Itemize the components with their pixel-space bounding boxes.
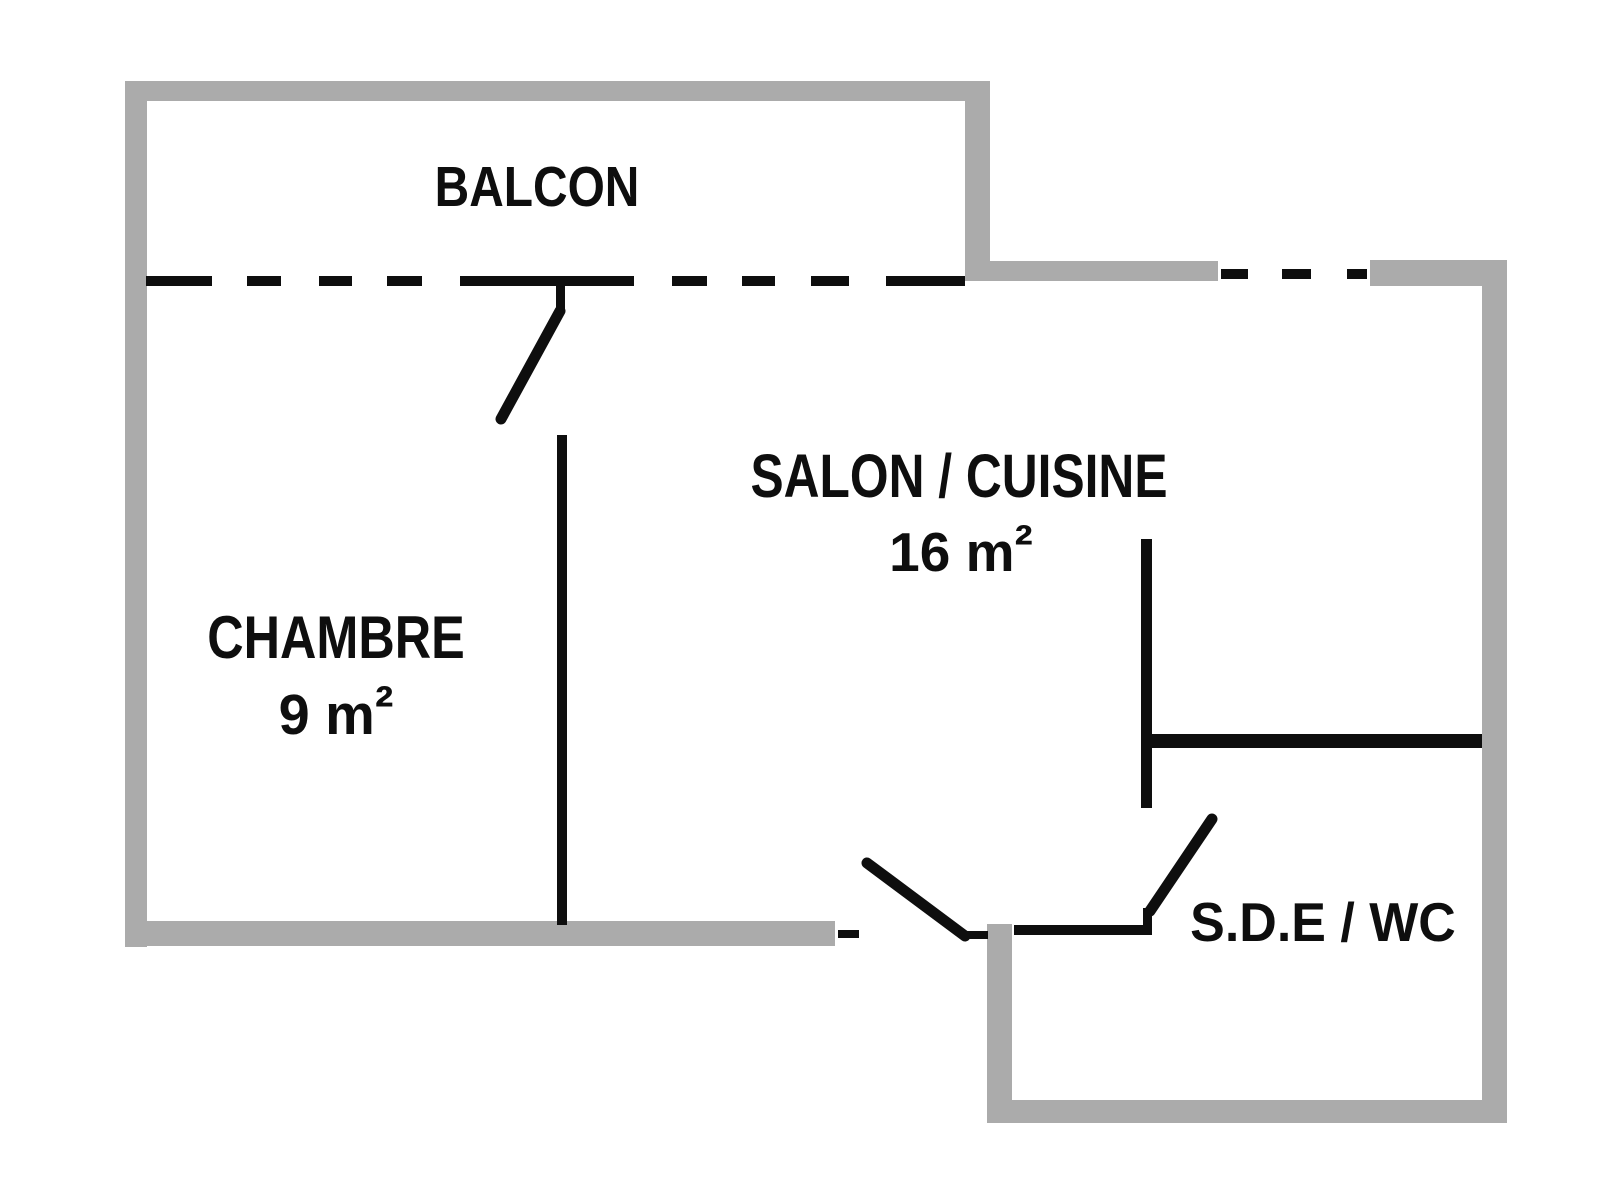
svg-text:16 m²: 16 m² [889,513,1033,583]
svg-text:S.D.E / WC: S.D.E / WC [1190,893,1456,954]
svg-text:SALON / CUISINE: SALON / CUISINE [751,442,1168,510]
svg-text:9 m²: 9 m² [279,674,394,746]
svg-text:CHAMBRE: CHAMBRE [207,604,465,671]
svg-text:BALCON: BALCON [435,155,640,219]
